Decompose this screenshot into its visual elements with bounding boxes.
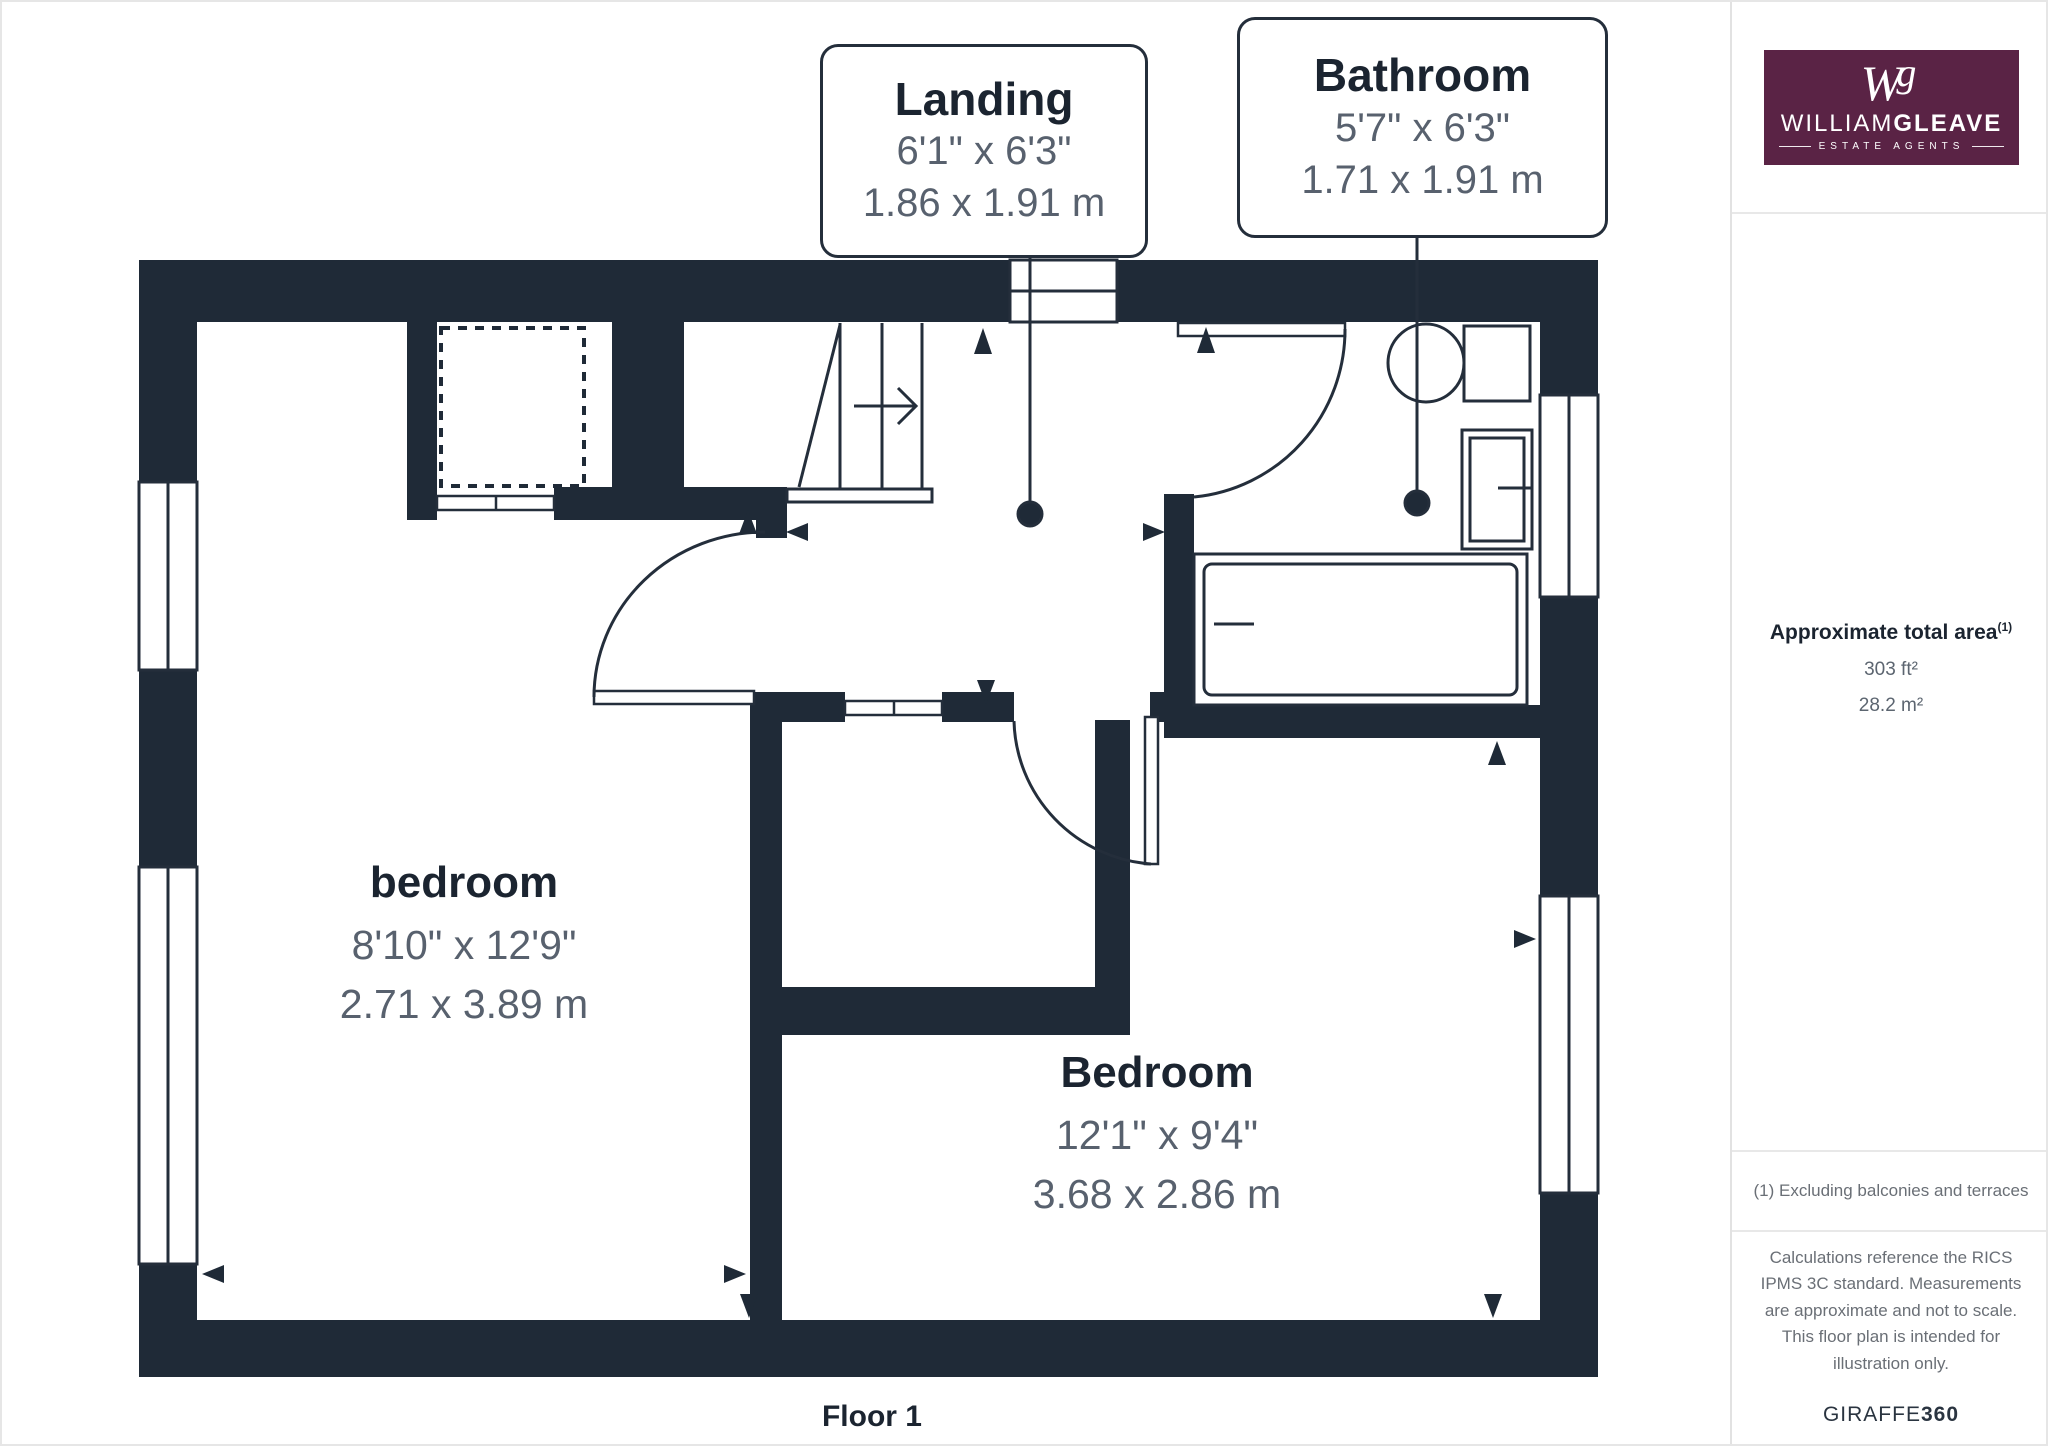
window-left-upper — [139, 482, 197, 670]
room-size-imperial: 12'1" x 9'4" — [947, 1106, 1367, 1165]
monogram-g: g — [1896, 50, 1916, 95]
arrow-right-icon — [1514, 930, 1536, 948]
callout-title: Landing — [895, 73, 1074, 126]
toilet-icon — [1388, 324, 1530, 402]
room-label-bedroom1: bedroom 8'10" x 12'9" 2.71 x 3.89 m — [254, 850, 674, 1035]
leader-dot — [1405, 491, 1429, 515]
window-top-landing — [1010, 260, 1117, 322]
room-size-metric: 2.71 x 3.89 m — [254, 975, 674, 1034]
area-imperial: 303 ft² — [1732, 659, 2048, 681]
room-label-bedroom2: Bedroom 12'1" x 9'4" 3.68 x 2.86 m — [947, 1040, 1367, 1225]
callout-size-imperial: 6'1" x 6'3" — [897, 125, 1072, 177]
closet-bifold-door — [437, 496, 554, 510]
walls — [139, 260, 1598, 1377]
area-metric: 28.2 m² — [1732, 695, 2048, 717]
arrow-right-icon — [1143, 523, 1165, 541]
giraffe-text: GIRAFFE — [1823, 1403, 1921, 1426]
tagline-rule — [1972, 146, 2003, 147]
footnote: (1) Excluding balconies and terraces — [1732, 1150, 2048, 1232]
tagline-rule — [1779, 146, 1810, 147]
wg-monogram-icon: Wg — [1861, 63, 1923, 109]
arrow-left-icon — [202, 1265, 224, 1283]
area-heading-text: Approximate total area — [1770, 621, 1998, 644]
brand-name: WILLIAMGLEAVE — [1781, 111, 2003, 137]
callout-size-imperial: 5'7" x 6'3" — [1335, 102, 1510, 154]
bedroom2-door — [1014, 717, 1158, 864]
leader-dot — [1018, 502, 1042, 526]
logo-cell: Wg WILLIAMGLEAVE ESTATE AGENTS — [1732, 2, 2048, 214]
area-heading-superscript: (1) — [1997, 620, 2012, 634]
room-size-imperial: 8'10" x 12'9" — [254, 916, 674, 975]
window-right-bathroom — [1540, 395, 1598, 597]
room-name: Bedroom — [947, 1040, 1367, 1106]
disclaimer-text: Calculations reference the RICS IPMS 3C … — [1756, 1245, 2026, 1377]
stairs-icon — [787, 323, 932, 502]
wardrobe-dashed-icon — [441, 328, 584, 486]
brand-first: WILLIAM — [1781, 110, 1894, 137]
disclaimer-cell: Calculations reference the RICS IPMS 3C … — [1732, 1228, 2048, 1444]
room-size-metric: 3.68 x 2.86 m — [947, 1165, 1367, 1224]
giraffe-360: 360 — [1921, 1403, 1959, 1426]
callout-landing: Landing 6'1" x 6'3" 1.86 x 1.91 m — [820, 44, 1148, 258]
sink-icon — [1462, 430, 1532, 549]
area-heading: Approximate total area(1) — [1732, 620, 2048, 645]
brand-second: GLEAVE — [1893, 110, 2002, 137]
door-arc — [594, 532, 765, 697]
window-right-bedroom — [1540, 896, 1598, 1193]
tagline-text: ESTATE AGENTS — [1819, 141, 1965, 152]
callout-size-metric: 1.86 x 1.91 m — [863, 177, 1105, 229]
info-sidebar: Wg WILLIAMGLEAVE ESTATE AGENTS Approxima… — [1730, 2, 2048, 1444]
callout-bathroom: Bathroom 5'7" x 6'3" 1.71 x 1.91 m — [1237, 17, 1608, 238]
door-arc — [1194, 329, 1345, 497]
door-arc — [1014, 721, 1151, 864]
cupboard-sliding-door — [845, 701, 942, 715]
giraffe360-brand: GIRAFFE360 — [1823, 1403, 1959, 1427]
approximate-area-block: Approximate total area(1) 303 ft² 28.2 m… — [1732, 620, 2048, 717]
brand-tagline: ESTATE AGENTS — [1779, 141, 2003, 152]
callout-size-metric: 1.71 x 1.91 m — [1301, 154, 1543, 206]
arrow-down-icon — [1484, 1294, 1502, 1318]
window-left-lower — [139, 867, 197, 1264]
bathroom-fixtures — [1194, 324, 1532, 705]
bedroom1-door — [594, 532, 765, 704]
arrow-left-icon — [786, 523, 808, 541]
callout-title: Bathroom — [1314, 49, 1531, 102]
bathtub-icon — [1194, 554, 1527, 705]
windows — [139, 260, 1598, 1264]
floor-label: Floor 1 — [702, 1400, 1042, 1434]
arrow-up-icon — [1488, 741, 1506, 765]
arrow-right-icon — [724, 1265, 746, 1283]
arrow-up-icon — [974, 328, 992, 354]
room-name: bedroom — [254, 850, 674, 916]
floorplan-page: Landing 6'1" x 6'3" 1.86 x 1.91 m Bathro… — [0, 0, 2048, 1446]
william-gleave-logo: Wg WILLIAMGLEAVE ESTATE AGENTS — [1764, 50, 2019, 165]
